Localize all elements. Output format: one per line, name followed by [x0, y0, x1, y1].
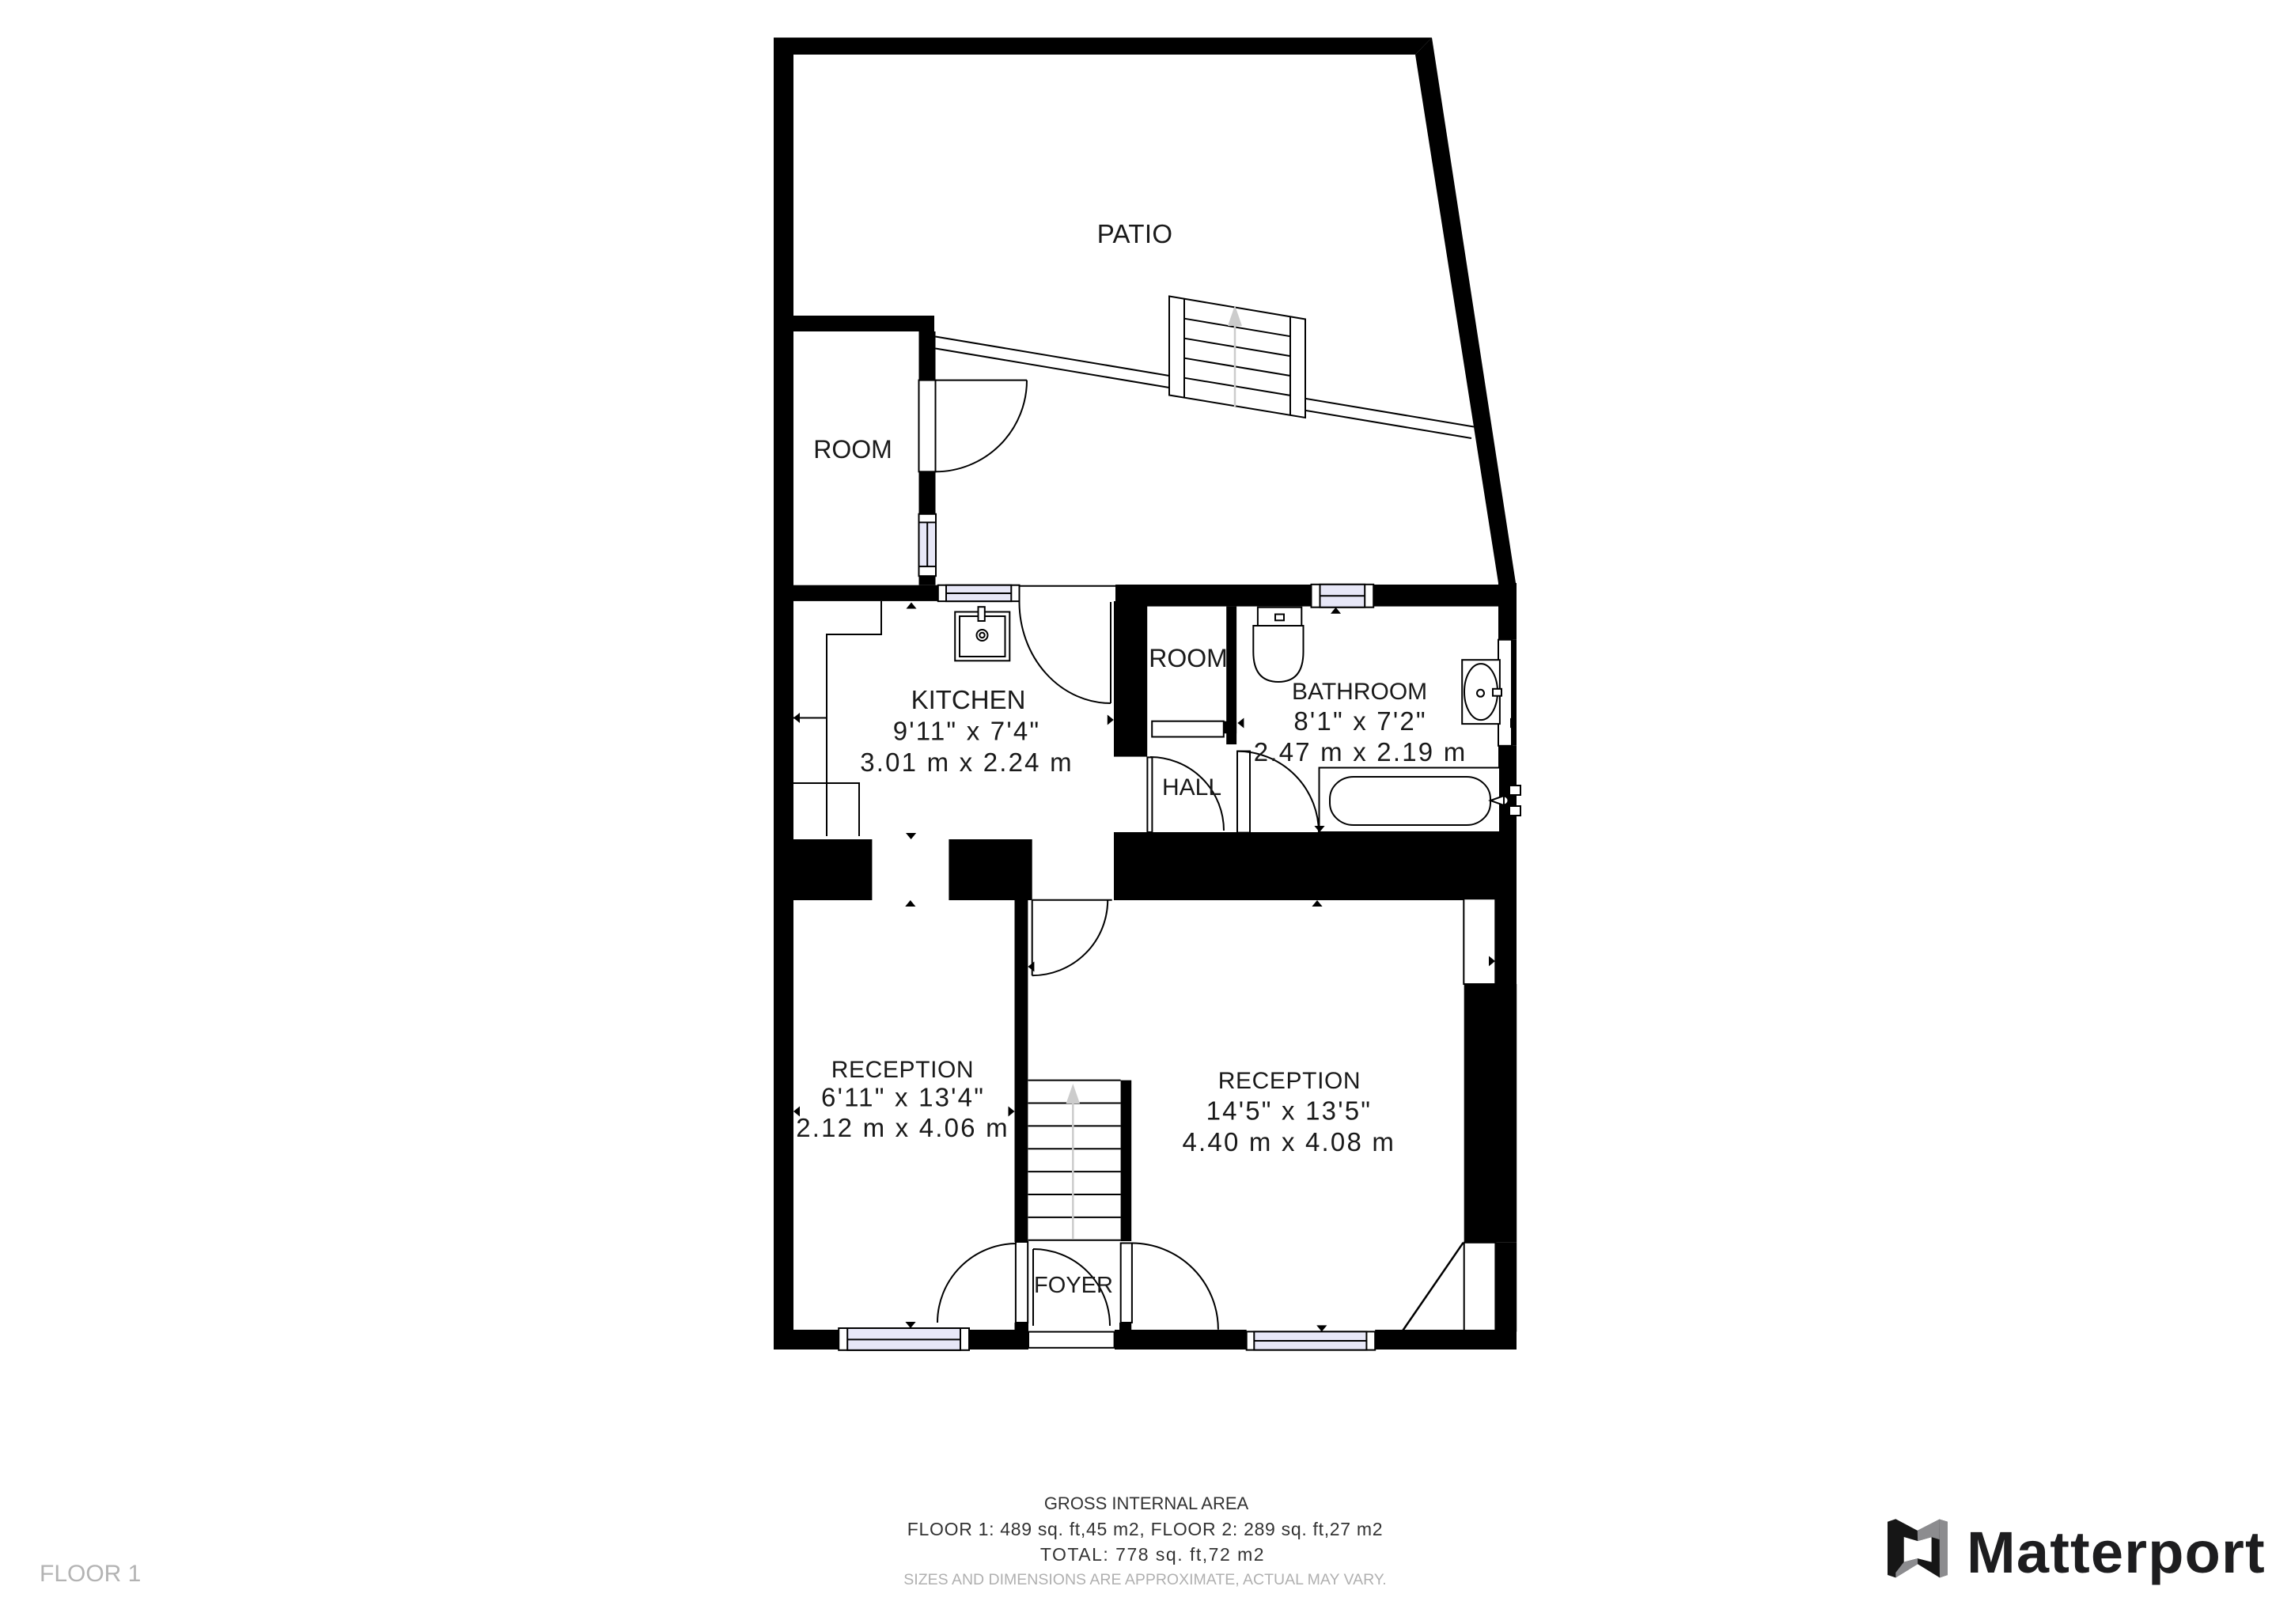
- svg-text:ROOM: ROOM: [813, 435, 892, 464]
- svg-text:BATHROOM: BATHROOM: [1292, 679, 1427, 705]
- svg-text:GROSS INTERNAL AREA: GROSS INTERNAL AREA: [1044, 1493, 1249, 1513]
- svg-text:TOTAL: 778 sq. ft,72 m2: TOTAL: 778 sq. ft,72 m2: [1040, 1544, 1265, 1565]
- svg-text:FOYER: FOYER: [1034, 1273, 1113, 1298]
- svg-text:PATIO: PATIO: [1097, 219, 1173, 248]
- svg-text:SIZES AND DIMENSIONS ARE APPRO: SIZES AND DIMENSIONS ARE APPROXIMATE, AC…: [903, 1571, 1386, 1588]
- svg-text:2.12 m x 4.06 m: 2.12 m x 4.06 m: [796, 1113, 1009, 1142]
- svg-text:FLOOR 1: 489 sq. ft,45 m2, FLO: FLOOR 1: 489 sq. ft,45 m2, FLOOR 2: 289 …: [907, 1519, 1383, 1539]
- svg-text:8'1" x 7'2": 8'1" x 7'2": [1293, 706, 1426, 736]
- svg-text:4.40 m x 4.08 m: 4.40 m x 4.08 m: [1182, 1127, 1395, 1156]
- svg-text:ROOM: ROOM: [1149, 644, 1228, 672]
- svg-text:FLOOR 1: FLOOR 1: [40, 1561, 141, 1587]
- svg-text:Matterport: Matterport: [1967, 1520, 2266, 1585]
- svg-text:14'5" x 13'5": 14'5" x 13'5": [1206, 1096, 1373, 1126]
- svg-text:3.01 m x 2.24 m: 3.01 m x 2.24 m: [860, 748, 1074, 777]
- svg-text:6'11" x 13'4": 6'11" x 13'4": [821, 1083, 985, 1112]
- svg-text:9'11" x 7'4": 9'11" x 7'4": [893, 717, 1041, 746]
- svg-text:KITCHEN: KITCHEN: [911, 685, 1026, 714]
- svg-text:2.47 m x 2.19 m: 2.47 m x 2.19 m: [1254, 737, 1467, 767]
- svg-text:RECEPTION: RECEPTION: [1218, 1068, 1361, 1094]
- svg-text:HALL: HALL: [1162, 774, 1221, 801]
- svg-text:RECEPTION: RECEPTION: [831, 1057, 974, 1083]
